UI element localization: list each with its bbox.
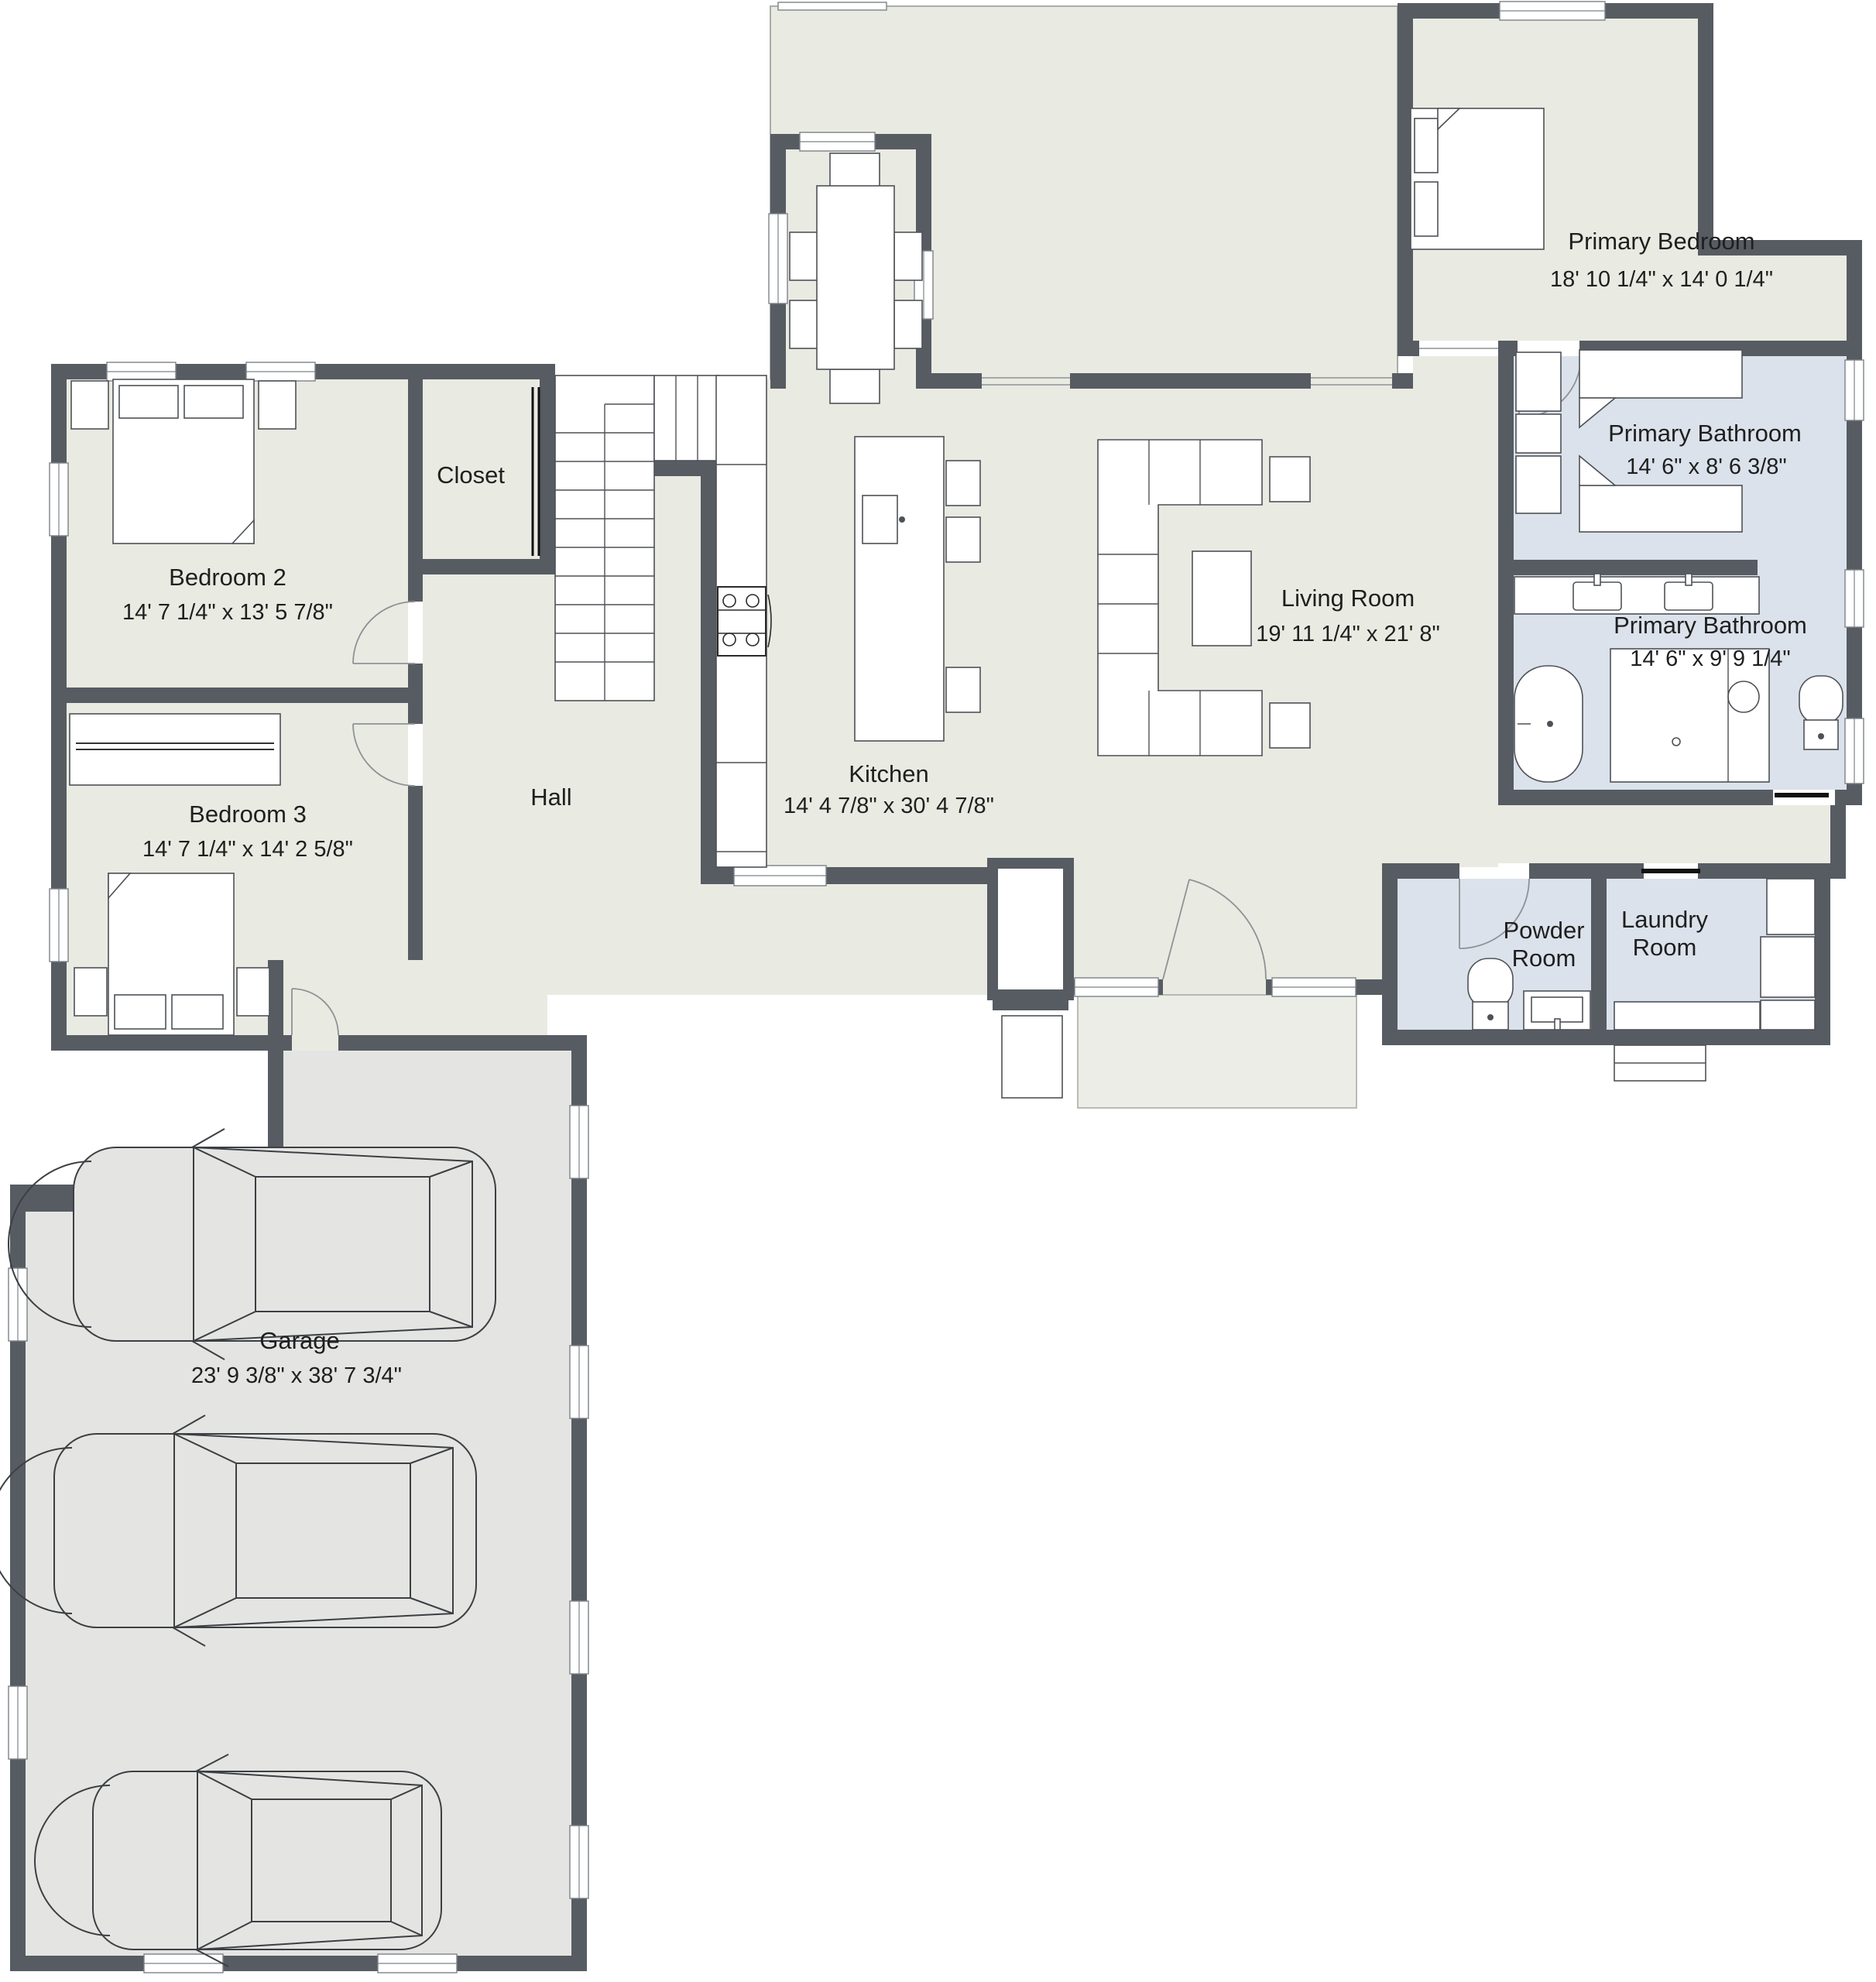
side-table <box>1270 457 1310 502</box>
dining-table <box>817 186 894 369</box>
cabinet <box>1767 879 1815 934</box>
window <box>800 132 875 151</box>
room-label-primary-bathroom-2: Primary Bathroom <box>1614 612 1807 639</box>
dining-chair <box>790 232 818 280</box>
window <box>1845 360 1864 420</box>
dining-chair <box>894 232 922 280</box>
room-label-kitchen: Kitchen <box>849 760 928 787</box>
cabinet <box>1761 1000 1815 1030</box>
window <box>50 463 68 536</box>
room-label-hall: Hall <box>530 784 571 811</box>
faucet <box>1594 574 1600 585</box>
entry-side-stoop <box>1002 1016 1062 1098</box>
garage-door <box>378 1954 457 1973</box>
window <box>1075 978 1158 996</box>
pillow <box>119 386 178 418</box>
cabinet <box>1516 456 1561 513</box>
room-dims-living-room: 19' 11 1/4" x 21' 8" <box>1256 622 1440 646</box>
laundry-counter <box>1614 1002 1760 1030</box>
wardrobe <box>1579 350 1742 398</box>
window <box>107 362 176 381</box>
window <box>50 889 68 962</box>
floors <box>26 2 1847 1956</box>
window <box>1272 978 1356 996</box>
room-label-laundry-room-2: Room <box>1633 934 1697 961</box>
room-label-closet: Closet <box>437 461 505 489</box>
entry-closet <box>993 863 1068 1098</box>
kitchen-island <box>855 437 944 741</box>
window <box>9 1268 27 1341</box>
pillow <box>1415 182 1438 236</box>
room-dims-primary-bathroom-2: 14' 6" x 9' 9 1/4" <box>1630 646 1790 671</box>
room-dims-bedroom-3: 14' 7 1/4" x 14' 2 5/8" <box>142 837 353 862</box>
nightstand <box>74 968 107 1016</box>
room-label-powder-room: Powder <box>1503 917 1584 944</box>
window <box>769 214 787 303</box>
room-label-garage: Garage <box>259 1327 339 1354</box>
cabinet <box>1516 352 1561 411</box>
window <box>1845 718 1864 784</box>
window <box>1500 2 1605 20</box>
room-label-primary-bedroom: Primary Bedroom <box>1568 228 1754 255</box>
window <box>570 1106 588 1178</box>
entry-stoop <box>1078 995 1356 1108</box>
island-sink <box>863 495 897 544</box>
faucet <box>1686 574 1692 585</box>
cabinet <box>1516 414 1561 453</box>
window <box>570 1826 588 1898</box>
window <box>734 866 826 886</box>
stove <box>718 587 771 656</box>
pillow <box>1415 118 1438 173</box>
dining-chair <box>894 300 922 348</box>
window <box>570 1601 588 1674</box>
patio-opening <box>778 2 887 10</box>
side-table <box>1270 703 1310 748</box>
dining-chair <box>790 300 818 348</box>
dining-chair <box>830 153 880 187</box>
wardrobe <box>1579 485 1742 532</box>
room-label-bedroom-2: Bedroom 2 <box>169 564 286 591</box>
room-dims-bedroom-2: 14' 7 1/4" x 13' 5 7/8" <box>122 600 333 625</box>
bathroom-pocket-door <box>1775 793 1829 797</box>
island-stool <box>946 517 980 562</box>
entry-floor <box>540 867 1382 995</box>
room-label-living-room: Living Room <box>1281 585 1415 612</box>
stairs-upper-flight <box>654 375 719 461</box>
dining-chair <box>830 369 880 403</box>
island-stool <box>946 461 980 506</box>
room-label-primary-bathroom-1: Primary Bathroom <box>1608 420 1802 447</box>
primary-bedroom-furniture <box>1411 108 1544 249</box>
coffee-table <box>1192 551 1251 646</box>
laundry-pocket-door <box>1641 869 1700 873</box>
island-stool <box>946 667 980 712</box>
car <box>35 1754 441 1967</box>
room-dims-primary-bathroom-1: 14' 6" x 8' 6 3/8" <box>1626 454 1786 479</box>
floor-plan-page: Primary Bedroom 18' 10 1/4" x 14' 0 1/4"… <box>0 0 1876 1982</box>
room-dims-kitchen: 14' 4 7/8" x 30' 4 7/8" <box>784 794 994 818</box>
washer <box>1761 937 1815 997</box>
toilet <box>1799 676 1843 749</box>
vanity <box>1524 991 1590 1030</box>
nightstand <box>71 381 108 429</box>
nightstand <box>237 968 269 1016</box>
toilet <box>1468 958 1513 1030</box>
window <box>246 362 315 381</box>
floor-plan-canvas: Primary Bedroom 18' 10 1/4" x 14' 0 1/4"… <box>0 0 1876 1982</box>
room-label-bedroom-3: Bedroom 3 <box>189 801 307 828</box>
rear-steps <box>1614 1045 1706 1081</box>
vanity-counter <box>1514 577 1759 614</box>
window <box>1845 570 1864 627</box>
sink <box>1573 582 1621 610</box>
car <box>0 1415 476 1646</box>
sink <box>1665 582 1713 610</box>
pillow <box>115 995 166 1029</box>
room-label-powder-room-2: Room <box>1512 945 1576 972</box>
window <box>9 1686 27 1759</box>
room-label-laundry-room: Laundry <box>1621 906 1709 933</box>
rear-hall-floor <box>1498 805 1830 863</box>
room-dims-garage: 23' 9 3/8" x 38' 7 3/4" <box>191 1363 402 1388</box>
pillow <box>172 995 223 1029</box>
pillow <box>184 386 243 418</box>
room-dims-primary-bedroom: 18' 10 1/4" x 14' 0 1/4" <box>1550 267 1773 292</box>
nightstand <box>259 381 296 429</box>
window <box>570 1346 588 1418</box>
